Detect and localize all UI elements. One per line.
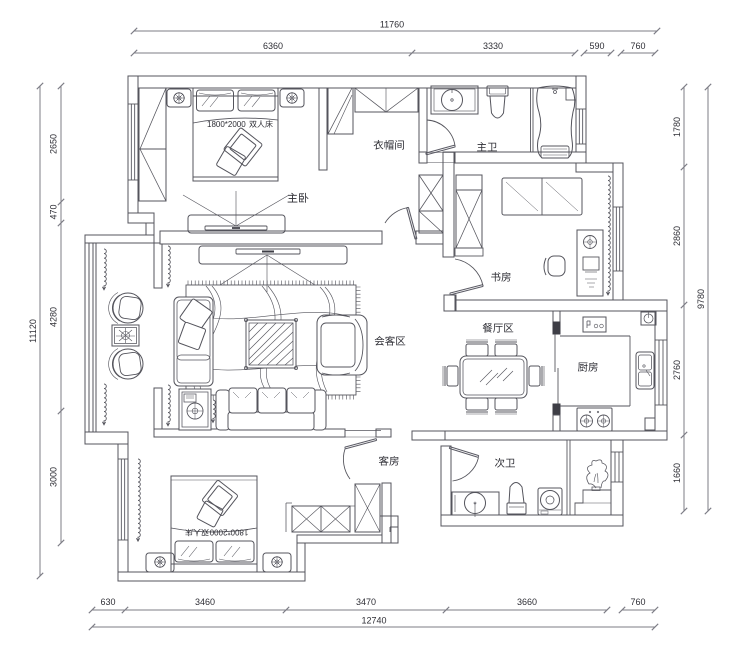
svg-text:11760: 11760 [380, 20, 404, 30]
svg-text:3330: 3330 [483, 41, 503, 51]
svg-text:1780: 1780 [672, 117, 682, 137]
svg-text:1660: 1660 [672, 463, 682, 483]
svg-text:2760: 2760 [672, 360, 682, 380]
svg-text:470: 470 [49, 204, 59, 219]
svg-text:1800*2000: 1800*2000 [209, 528, 248, 537]
svg-text:1800*2000: 1800*2000 [207, 120, 246, 129]
svg-text:760: 760 [630, 597, 645, 607]
svg-text:11120: 11120 [28, 319, 38, 343]
svg-text:630: 630 [100, 597, 115, 607]
svg-text:3460: 3460 [195, 597, 215, 607]
svg-text:9780: 9780 [696, 289, 706, 309]
svg-text:4280: 4280 [49, 307, 59, 327]
svg-text:12740: 12740 [361, 616, 386, 626]
svg-text:2650: 2650 [49, 134, 59, 154]
svg-text:808: 808 [552, 87, 558, 91]
svg-text:760: 760 [630, 41, 645, 51]
svg-text:3470: 3470 [356, 597, 376, 607]
svg-text:590: 590 [589, 41, 604, 51]
svg-text:3000: 3000 [49, 467, 59, 487]
svg-text:2860: 2860 [672, 226, 682, 246]
svg-text:3660: 3660 [517, 597, 537, 607]
svg-text:6360: 6360 [263, 41, 283, 51]
